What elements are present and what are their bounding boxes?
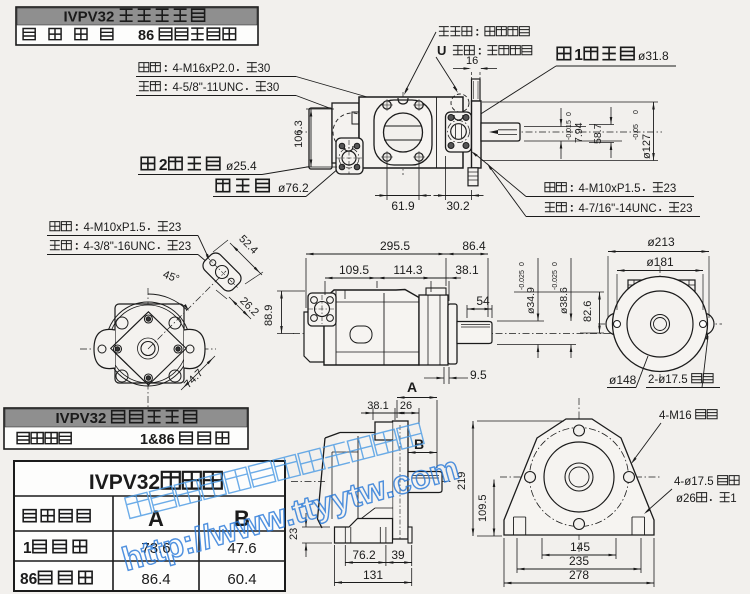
svg-text:86.4: 86.4 xyxy=(141,571,170,588)
svg-text:30.2: 30.2 xyxy=(446,199,470,213)
svg-text:4-M16xP2.0: 4-M16xP2.0 xyxy=(173,63,235,75)
svg-text:60.4: 60.4 xyxy=(227,571,256,588)
svg-text:23: 23 xyxy=(664,183,677,195)
svg-text:4-ø17.5: 4-ø17.5 xyxy=(674,476,714,488)
svg-text:-0.05: -0.05 xyxy=(633,124,640,140)
svg-text:-0.025: -0.025 xyxy=(552,270,559,290)
svg-text:295.5: 295.5 xyxy=(380,239,410,253)
svg-text:1: 1 xyxy=(23,540,32,557)
svg-text:4-7/16"-14UNC: 4-7/16"-14UNC xyxy=(579,203,657,215)
svg-text:U: U xyxy=(437,43,446,58)
svg-text:39: 39 xyxy=(391,548,405,562)
svg-text:9.5: 9.5 xyxy=(470,368,487,382)
svg-text:IVPV32: IVPV32 xyxy=(64,9,115,26)
svg-text:23: 23 xyxy=(680,203,693,215)
svg-text:235: 235 xyxy=(569,554,589,568)
svg-text:4-3/8"-16UNC: 4-3/8"-16UNC xyxy=(84,241,156,253)
svg-text:0: 0 xyxy=(566,112,573,116)
svg-text:114.3: 114.3 xyxy=(393,263,422,277)
svg-text:1&86: 1&86 xyxy=(140,432,175,448)
svg-text:109.5: 109.5 xyxy=(477,494,489,522)
svg-text:30: 30 xyxy=(267,82,280,94)
svg-text:IVPV32: IVPV32 xyxy=(56,410,107,427)
svg-text:A: A xyxy=(407,379,417,395)
svg-text:ø34.9: ø34.9 xyxy=(525,287,537,314)
svg-text:4-5/8"-11UNC: 4-5/8"-11UNC xyxy=(173,82,244,94)
svg-text:-0.015: -0.015 xyxy=(566,120,573,140)
svg-text:109.5: 109.5 xyxy=(339,263,369,277)
svg-text:ø148: ø148 xyxy=(609,373,637,387)
svg-text:ø26: ø26 xyxy=(676,493,696,505)
svg-text:38.1: 38.1 xyxy=(455,263,479,277)
svg-text:0: 0 xyxy=(552,262,559,266)
svg-text:278: 278 xyxy=(569,568,589,582)
svg-text:ø127: ø127 xyxy=(641,134,653,159)
svg-text:4-M16: 4-M16 xyxy=(659,410,692,422)
svg-text:61.9: 61.9 xyxy=(391,199,415,213)
svg-text:-0.025: -0.025 xyxy=(519,270,526,290)
svg-text:86: 86 xyxy=(20,571,38,588)
svg-text:88.9: 88.9 xyxy=(263,305,275,326)
svg-text:1: 1 xyxy=(574,47,583,64)
svg-text:4-M10xP1.5: 4-M10xP1.5 xyxy=(84,222,146,234)
svg-text:86: 86 xyxy=(138,28,154,44)
svg-text:4-M10xP1.5: 4-M10xP1.5 xyxy=(579,183,641,195)
svg-text:ø25.4: ø25.4 xyxy=(226,159,257,173)
svg-text:38.1: 38.1 xyxy=(367,400,388,412)
svg-text:ø38.6: ø38.6 xyxy=(558,287,570,314)
svg-text:86.4: 86.4 xyxy=(462,239,486,253)
svg-text:IVPV32: IVPV32 xyxy=(89,471,160,494)
svg-text:16: 16 xyxy=(466,55,478,67)
svg-text:23: 23 xyxy=(178,241,191,253)
svg-text:106.3: 106.3 xyxy=(293,120,305,148)
svg-text:30: 30 xyxy=(258,63,271,75)
svg-text:0: 0 xyxy=(519,262,526,266)
svg-text:0: 0 xyxy=(633,110,640,114)
svg-text:ø31.8: ø31.8 xyxy=(638,49,669,63)
svg-text:ø76.2: ø76.2 xyxy=(278,181,309,195)
svg-text:7.94: 7.94 xyxy=(573,122,585,143)
svg-text:23: 23 xyxy=(169,222,182,234)
svg-text:2-ø17.5: 2-ø17.5 xyxy=(648,374,688,386)
svg-text:58.7: 58.7 xyxy=(592,123,604,144)
svg-text:54: 54 xyxy=(476,294,490,308)
svg-text:26: 26 xyxy=(400,400,412,412)
svg-text:82.6: 82.6 xyxy=(582,301,594,322)
svg-text:ø181: ø181 xyxy=(646,255,674,269)
svg-text:1: 1 xyxy=(730,493,736,505)
svg-text:145: 145 xyxy=(570,540,590,554)
svg-text:2: 2 xyxy=(159,157,168,174)
svg-text:ø213: ø213 xyxy=(647,235,675,249)
svg-text:76.2: 76.2 xyxy=(352,548,376,562)
svg-text:131: 131 xyxy=(363,568,383,582)
